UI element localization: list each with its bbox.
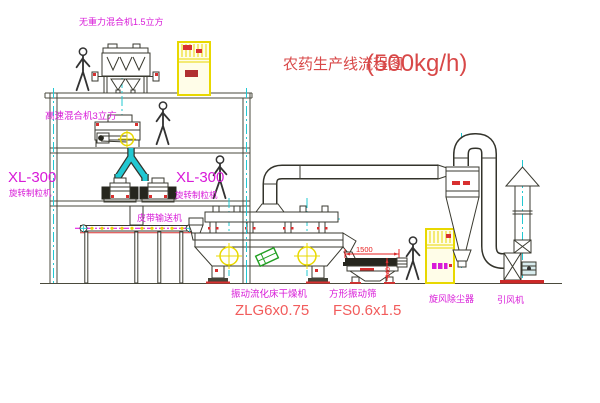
belt-conveyor [75,225,201,283]
bucket-elevator-2 [426,229,454,283]
screen-height-dimension: 340 [385,267,392,278]
worker-figure-ground [407,237,420,279]
top-mixer [92,44,159,93]
dryer-model: ZLG6x0.75 [235,302,309,319]
granulator-left-unit [102,178,138,202]
flow-diagram: 农药生产线流程图 (500kg/h) 无重力混合机1.5立方 高速混合机3立方 … [0,0,600,403]
high-speed-mixer-label: 高速混合机3立方 [45,110,117,122]
granulator-left-label: 旋转制粒机 [9,188,52,198]
vibrating-screen [343,249,407,284]
screen-label: 方形振动筛 [329,288,377,300]
belt-conveyor-label: 皮带输送机 [137,212,182,223]
worker-figure-floor2 [157,102,170,144]
fan-label: 引风机 [497,294,524,305]
screen-length-dimension: 1500 [356,245,373,254]
top-mixer-label: 无重力混合机1.5立方 [79,16,164,27]
cyclone-label: 旋风除尘器 [429,293,474,304]
fluid-bed-dryer [189,206,356,284]
granulator-left-model: XL-300 [8,169,56,186]
granulator-right-model: XL-300 [176,169,224,186]
worker-figure-roof [77,48,90,90]
bucket-elevator-1 [178,42,210,95]
dryer-exhaust-duct [256,165,447,212]
granulator-right-label: 旋转制粒机 [175,190,218,200]
granulator-right-unit [140,178,176,202]
page-title-capacity: (500kg/h) [366,50,467,77]
screen-model: FS0.6x1.5 [333,302,401,319]
dryer-label: 振动流化床干燥机 [231,288,308,300]
drawing-canvas: 农药生产线流程图 (500kg/h) 无重力混合机1.5立方 高速混合机3立方 … [0,0,600,403]
